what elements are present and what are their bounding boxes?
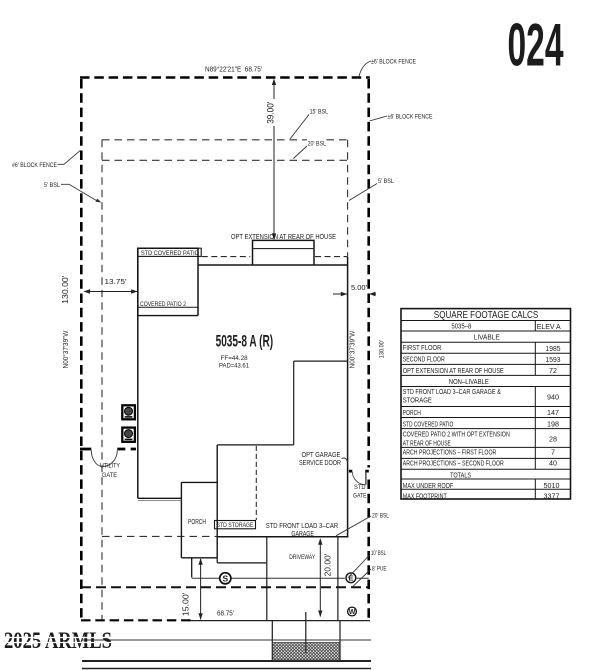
svg-text:STD: STD: [354, 484, 366, 491]
svg-text:198: 198: [547, 419, 559, 428]
svg-text:5035–8: 5035–8: [451, 322, 471, 331]
svg-text:SERVICE DOOR: SERVICE DOOR: [299, 460, 341, 467]
svg-text:5' BSL: 5' BSL: [44, 182, 60, 189]
svg-text:ARCH PROJECTIONS – SECOND FLOO: ARCH PROJECTIONS – SECOND FLOOR: [403, 459, 504, 468]
svg-text:FF=44.28: FF=44.28: [221, 355, 248, 362]
svg-text:72: 72: [549, 366, 557, 375]
svg-text:1985: 1985: [546, 344, 561, 353]
svg-text:1593: 1593: [546, 355, 561, 364]
svg-text:#6' BLOCK FENCE: #6' BLOCK FENCE: [12, 162, 58, 169]
svg-text:MAX FOOTPRINT: MAX FOOTPRINT: [403, 491, 447, 500]
svg-text:N00°37'39"W: N00°37'39"W: [62, 330, 70, 368]
svg-text:STD STORAGE: STD STORAGE: [217, 522, 254, 529]
svg-text:SQUARE FOOTAGE CALCS: SQUARE FOOTAGE CALCS: [434, 310, 539, 321]
svg-text:NON–LIVABLE: NON–LIVABLE: [449, 377, 489, 386]
svg-text:15.00': 15.00': [181, 592, 191, 616]
svg-text:024: 024: [508, 11, 564, 78]
svg-text:PORCH: PORCH: [403, 408, 421, 417]
svg-text:OPT GARAGE: OPT GARAGE: [302, 452, 341, 459]
svg-text:ARCH PROJECTIONS – FIRST FLOOR: ARCH PROJECTIONS – FIRST FLOOR: [403, 448, 497, 457]
svg-text:GATE: GATE: [102, 472, 118, 479]
svg-text:PAD=43.61: PAD=43.61: [219, 362, 249, 369]
svg-text:20' BSL: 20' BSL: [372, 513, 389, 520]
svg-text:STD COVERED PATIO: STD COVERED PATIO: [403, 419, 454, 428]
svg-text:5035-8 A (R): 5035-8 A (R): [216, 331, 274, 350]
svg-text:DRIVEWAY: DRIVEWAY: [289, 554, 316, 561]
svg-text:GARAGE: GARAGE: [291, 529, 314, 538]
svg-text:7: 7: [551, 448, 555, 457]
svg-text:STORAGE: STORAGE: [403, 395, 432, 404]
svg-text:MAX UNDER ROOF: MAX UNDER ROOF: [403, 481, 454, 490]
svg-text:OPT EXTENSION AT REAR OF HOUSE: OPT EXTENSION AT REAR OF HOUSE: [403, 366, 504, 375]
svg-text:15' BSL: 15' BSL: [310, 109, 329, 116]
svg-text:ELEV A: ELEV A: [537, 322, 561, 331]
svg-text:TOTALS: TOTALS: [450, 471, 471, 480]
svg-text:130.00': 130.00': [378, 340, 385, 358]
svg-text:N89°22'21"E 68.75': N89°22'21"E 68.75': [205, 66, 262, 74]
svg-text:OPT EXTENSION AT REAR OF HOUSE: OPT EXTENSION AT REAR OF HOUSE: [231, 234, 336, 241]
svg-text:UTILITY: UTILITY: [100, 463, 121, 470]
svg-text:AT REAR OF HOUSE: AT REAR OF HOUSE: [403, 438, 451, 447]
svg-text:S: S: [222, 573, 228, 583]
svg-text:39.00': 39.00': [265, 101, 275, 123]
svg-text:2025 ARMLS: 2025 ARMLS: [4, 628, 112, 654]
svg-text:COVERED PATIO 2 WITH OPT EXTEN: COVERED PATIO 2 WITH OPT EXTENSION: [403, 430, 510, 439]
svg-text:±6' BLOCK FENCE: ±6' BLOCK FENCE: [371, 59, 417, 66]
svg-text:5' BSL: 5' BSL: [378, 178, 394, 185]
svg-text:±6' BLOCK FENCE: ±6' BLOCK FENCE: [388, 114, 434, 121]
svg-text:940: 940: [547, 392, 559, 401]
svg-text:10' BSL: 10' BSL: [371, 550, 386, 557]
svg-text:147: 147: [547, 408, 559, 417]
svg-text:SECOND FLOOR: SECOND FLOOR: [403, 354, 445, 363]
svg-text:130.00': 130.00': [61, 275, 70, 304]
svg-text:LIVABLE: LIVABLE: [474, 333, 500, 342]
svg-text:PORCH: PORCH: [188, 519, 206, 526]
svg-text:5.00': 5.00': [351, 283, 368, 292]
svg-text:FIRST FLOOR: FIRST FLOOR: [403, 343, 442, 352]
svg-text:13.75': 13.75': [105, 277, 128, 286]
svg-text:N00°37'39"W: N00°37'39"W: [349, 330, 357, 368]
svg-text:8' PUE: 8' PUE: [372, 566, 387, 573]
svg-text:3377: 3377: [544, 491, 560, 500]
svg-text:20' BSL: 20' BSL: [308, 140, 327, 147]
svg-text:28: 28: [549, 434, 557, 443]
svg-text:68.75': 68.75': [217, 610, 234, 617]
svg-text:W: W: [349, 609, 356, 616]
svg-text:5010: 5010: [544, 481, 560, 490]
svg-text:40: 40: [549, 459, 557, 468]
svg-text:STD COVERED PATIO: STD COVERED PATIO: [141, 250, 199, 257]
svg-text:GATE: GATE: [353, 493, 367, 500]
svg-text:20.00': 20.00': [322, 553, 332, 576]
